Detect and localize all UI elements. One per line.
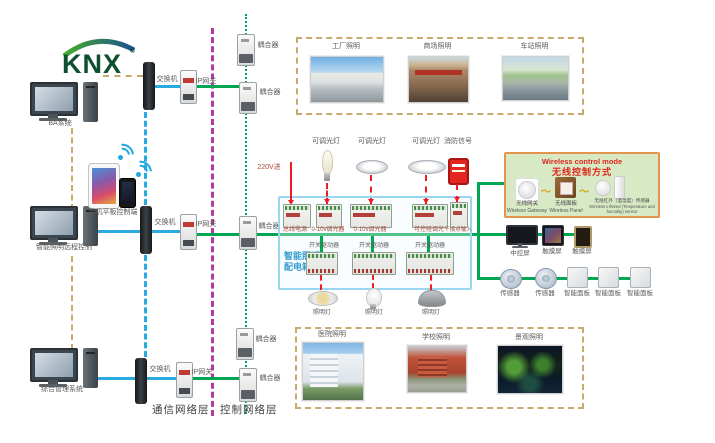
switch-label-mid: 交换机: [150, 219, 180, 227]
network-switch-top: [143, 62, 155, 110]
wireless-gateway-zh: 无线网关: [506, 201, 548, 208]
knx-registered-mark: ®: [130, 48, 135, 55]
green-trunk-right: [477, 182, 480, 280]
scene-label-mall: 商场照明: [408, 43, 467, 51]
knx-lighting-system-diagram: KNX ® BA系统 智能照明远程控制 综合管理系统 手机平板控制端 交换机 I…: [0, 0, 715, 443]
lamp-drop-1: [320, 275, 322, 290]
wireless-panel-zh: 无线面板: [546, 201, 586, 208]
wireless-control-box: Wireless control mode 无线控制方式 无线网关 Wirele…: [504, 152, 660, 218]
coupler-2: [239, 82, 257, 114]
landscape-photo: [497, 345, 563, 394]
touch-screen-1: [542, 225, 564, 246]
power-in-line: [290, 162, 292, 202]
network-switch-bottom: [135, 358, 147, 404]
touch-screen-label-2: 触摸屏: [568, 248, 596, 255]
ip-gateway-label-bottom: IP网关: [188, 369, 216, 377]
bulb-base: [324, 173, 330, 181]
sensor-1: [500, 269, 522, 289]
pc-tower: [83, 348, 98, 388]
smart-panel-1: [567, 267, 588, 288]
screen-base: [512, 246, 528, 248]
smart-panel-3: [630, 267, 651, 288]
scene-label-hospital: 医院照明: [302, 331, 362, 339]
communication-layer-label: 通信网络层: [152, 402, 210, 417]
wireless-panel-en: Wireless Panel: [549, 208, 582, 214]
switch-driver-label-1: 开关驱动器: [304, 243, 344, 250]
management-computer: [30, 348, 102, 390]
tan-link-vertical-2: [71, 256, 73, 350]
lamp-drop-3: [430, 275, 432, 290]
smart-panel-label-2: 智能面板: [593, 290, 623, 297]
knx-logo-text: KNX: [62, 49, 122, 80]
monitor: [30, 348, 78, 382]
touch-screen-label-1: 触摸屏: [538, 248, 566, 255]
switch-driver-2: [352, 252, 396, 275]
load-label-dimmable-1: 可调光灯: [306, 138, 346, 146]
flat-ceiling-lamp: [308, 291, 338, 306]
scene-label-station: 车站照明: [502, 43, 567, 51]
control-layer-label: 控制网络层: [220, 402, 278, 417]
lamp-label-1: 照明灯: [308, 310, 336, 317]
wireless-gateway-label: 无线网关 Wireless Gateway: [506, 201, 548, 214]
coupler-5: [239, 368, 257, 402]
wireless-panel-device: [555, 177, 576, 198]
wireless-panel-label: 无线面板 Wireless Panel: [546, 201, 586, 214]
wireless-ir-sensor-en: Wireless infrared (Temperature and humid…: [589, 204, 655, 214]
coupler-1: [237, 34, 255, 66]
wireless-link-icon: 〜: [579, 183, 589, 198]
ba-computer: [30, 82, 102, 124]
blue-link-switch-gateway-top: [155, 85, 181, 88]
central-control-screen: [506, 225, 538, 245]
lamp-label-3: 照明灯: [417, 310, 445, 317]
monitor-screen: [35, 87, 73, 111]
ceiling-lamp: [408, 160, 446, 174]
coupler-label-1: 耦合器: [254, 42, 282, 50]
ip-gateway-label-mid: IP网关: [192, 221, 220, 229]
station-photo: [502, 56, 569, 101]
ip-gateway-mid: [180, 214, 197, 250]
dimmer-1-label: 0-10v调光器: [306, 227, 350, 234]
power-in-label: 220V进: [252, 164, 286, 172]
monitor-screen: [35, 353, 73, 377]
lamp-label-2: 照明灯: [360, 310, 388, 317]
wireless-title-zh: 无线控制方式: [506, 165, 658, 178]
dry-contact-input: [450, 202, 468, 228]
wireless-link-icon: 〜: [541, 183, 551, 198]
wireless-gateway-en: Wireless Gateway: [507, 208, 547, 214]
hospital-photo: [302, 342, 364, 401]
switch-driver-label-3: 开关驱动器: [408, 243, 452, 250]
bulb-base: [370, 304, 376, 309]
comm-network-bus-2: [144, 255, 147, 357]
smartphone: [119, 178, 136, 208]
switch-label-bottom: 交换机: [145, 366, 175, 374]
sensor-label-2: 传感器: [532, 290, 558, 297]
smart-panel-label-1: 智能面板: [562, 290, 592, 297]
ba-computer-label: BA系统: [25, 120, 95, 128]
dimmer-2-label: 0-10v调光器: [348, 227, 392, 234]
scene-label-school: 学校照明: [407, 334, 465, 342]
switch-driver-label-2: 开关驱动器: [352, 243, 396, 250]
lamp-drop-2: [372, 275, 374, 288]
ip-gateway-top: [180, 70, 197, 104]
dimmer-0-10v-2: [350, 204, 392, 228]
wireless-ir-sensor-label: 无线红外（温湿度）传感器 Wireless infrared (Temperat…: [588, 198, 656, 214]
coupler-label-2: 耦合器: [256, 89, 284, 97]
scr-dimmer: [412, 204, 448, 228]
switch-driver-1: [306, 252, 338, 275]
factory-photo: [310, 56, 384, 103]
coupler-3: [239, 216, 257, 250]
candle-bulb: [322, 150, 333, 174]
touch-screen-2: [574, 226, 592, 248]
monitor: [30, 82, 78, 116]
dome-lamp: [418, 290, 446, 307]
dimmer-0-10v-1: [316, 204, 342, 228]
management-label: 综合管理系统: [22, 386, 102, 394]
central-screen-label: 中控屏: [500, 250, 540, 257]
smart-panel-2: [598, 267, 619, 288]
downlight-lamp: [356, 160, 388, 174]
comm-network-bus-1: [144, 112, 147, 205]
bus-power-device: [283, 204, 311, 228]
dry-contact-label: 干接点输入: [443, 227, 473, 233]
scene-label-landscape: 景观照明: [497, 334, 561, 342]
tablet: [88, 163, 120, 209]
wireless-ir-sensor-rect: [614, 176, 625, 199]
load-label-fire: 消防信号: [440, 138, 476, 146]
smart-panel-label-3: 智能面板: [625, 290, 655, 297]
ip-gateway-label-top: IP网关: [192, 78, 220, 86]
load-label-dimmable-2: 可调光灯: [352, 138, 392, 146]
switch-label-top: 交换机: [152, 76, 182, 84]
wireless-gateway-device: [515, 178, 539, 202]
wifi-icon: [135, 171, 142, 178]
wireless-ir-sensor-round: [595, 180, 611, 196]
green-branch-wireless: [479, 182, 506, 185]
switch-driver-3: [406, 252, 454, 275]
network-switch-mid: [140, 206, 152, 254]
knx-logo: KNX ®: [58, 36, 142, 82]
sensor-2: [535, 268, 557, 289]
pc-tower: [83, 82, 98, 122]
fire-alarm: [448, 158, 469, 185]
scene-label-factory: 工厂照明: [310, 43, 382, 51]
remote-control-label: 智能照明远程控制: [14, 244, 114, 252]
tan-link-vertical-1: [71, 128, 73, 210]
coupler-label-4: 耦合器: [252, 336, 280, 344]
coupler-label-5: 耦合器: [256, 375, 284, 383]
mall-photo: [408, 56, 469, 103]
school-photo: [407, 345, 467, 393]
ip-gateway-bottom: [176, 362, 193, 398]
wifi-icon: [117, 154, 124, 161]
sensor-label-1: 传感器: [497, 290, 523, 297]
